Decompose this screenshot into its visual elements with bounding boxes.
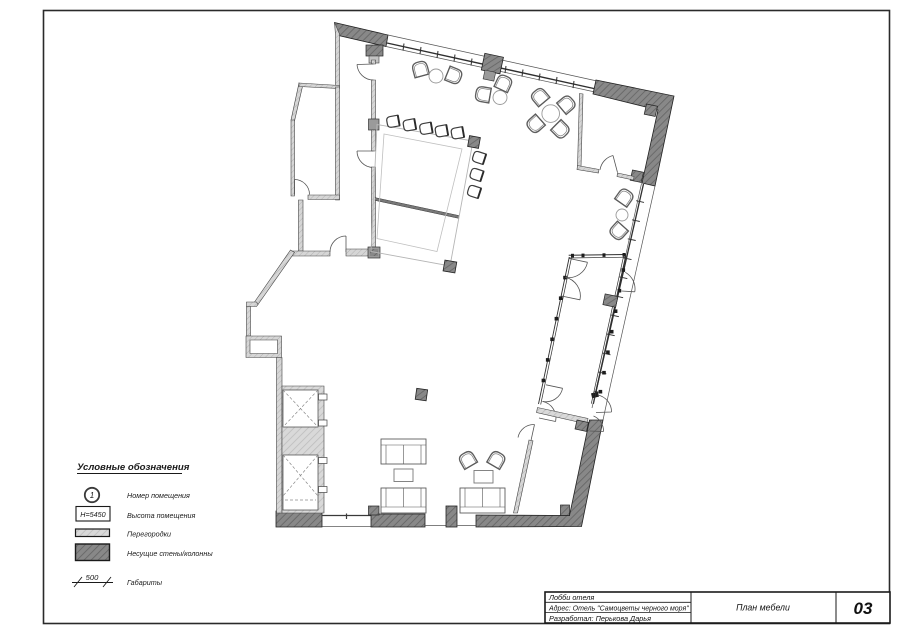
svg-text:Перегородки: Перегородки	[127, 530, 171, 539]
svg-text:Габариты: Габариты	[127, 578, 163, 587]
svg-text:03: 03	[854, 599, 873, 618]
svg-text:1: 1	[90, 491, 94, 500]
svg-text:Разработал: Перькова Дарья: Разработал: Перькова Дарья	[549, 614, 651, 623]
svg-text:Номер помещения: Номер помещения	[127, 491, 190, 500]
svg-text:Несущие стены/колонны: Несущие стены/колонны	[127, 549, 213, 558]
svg-text:Лобби отеля: Лобби отеля	[548, 593, 594, 602]
svg-text:Высота помещения: Высота помещения	[127, 511, 196, 520]
svg-text:План мебели: План мебели	[736, 603, 790, 613]
svg-text:Условные обозначения: Условные обозначения	[77, 462, 190, 473]
svg-text:H=5450: H=5450	[80, 510, 105, 519]
svg-text:500: 500	[86, 573, 99, 582]
svg-text:Адрес: Отель "Самоцветы черног: Адрес: Отель "Самоцветы черного моря"	[548, 604, 689, 612]
